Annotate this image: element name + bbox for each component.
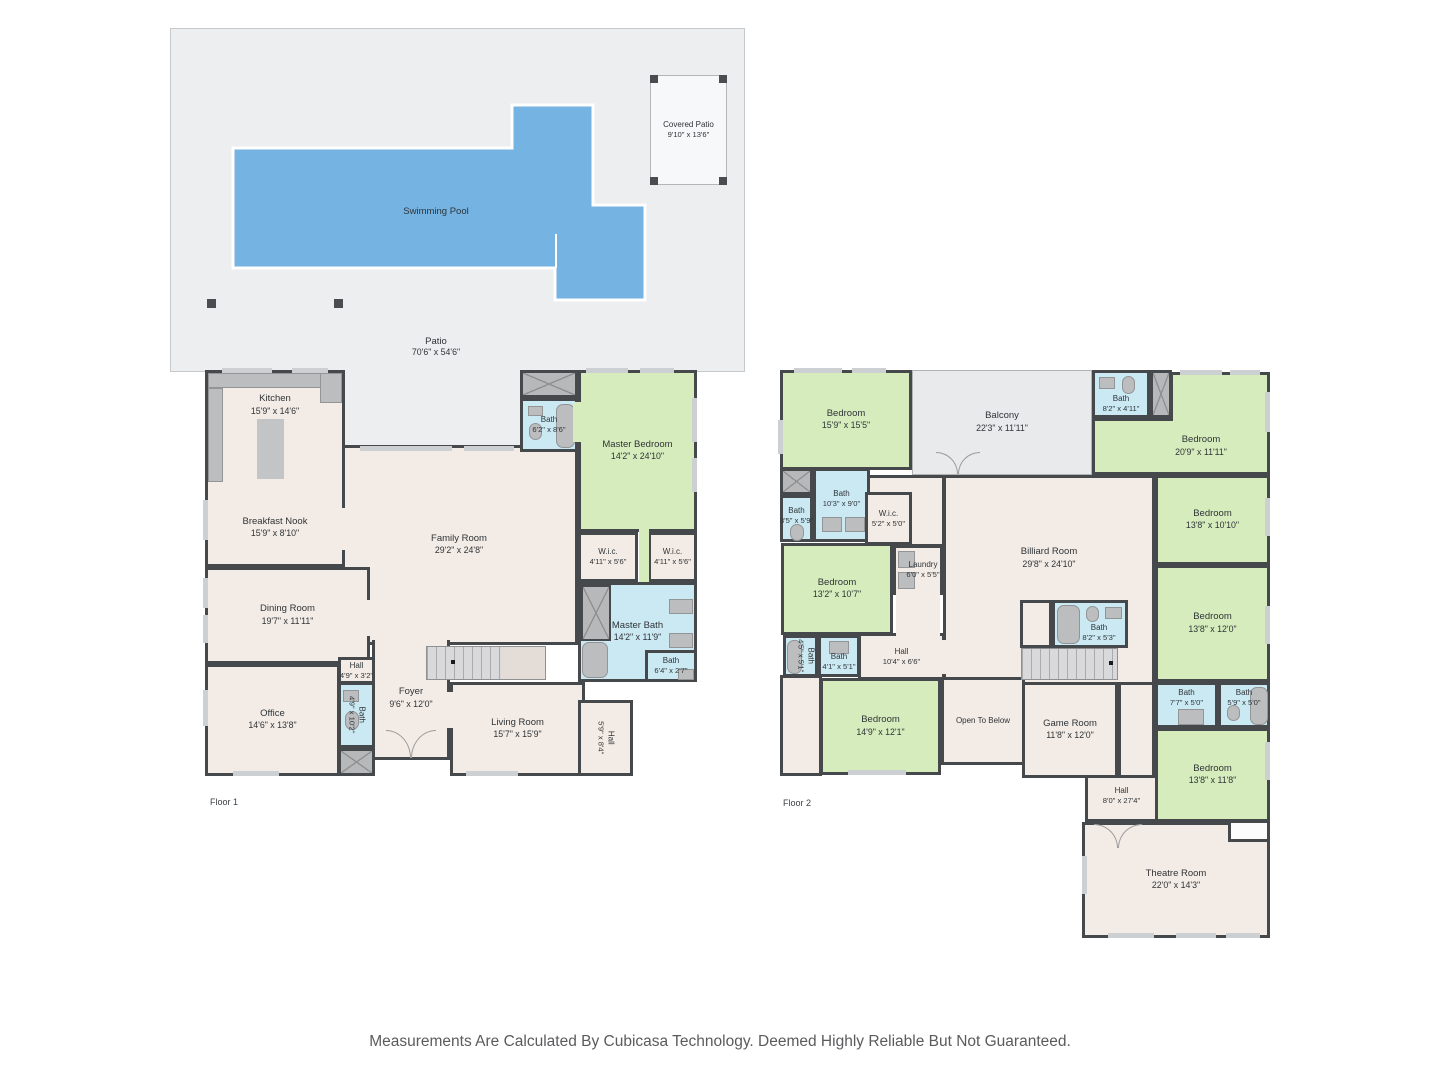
room-label: Living Room 15'7" x 15'9" — [491, 717, 544, 741]
room-dims: 10'3" x 9'0" — [823, 499, 860, 508]
bath-toilet — [1122, 376, 1135, 394]
opening-patch — [938, 640, 950, 674]
room-family-room: Family Room 29'2" x 24'8" — [340, 445, 578, 645]
room-dims: 4'9" x 3'2" — [340, 671, 373, 680]
room-hall-small: Hall 4'9" x 3'2" — [338, 657, 375, 684]
room-name: Breakfast Nook — [243, 516, 308, 529]
room-dims: 29'8" x 24'10" — [1021, 559, 1078, 571]
room-name: Bath — [780, 506, 813, 516]
room-breakfast-nook: Breakfast Nook 15'9" x 8'10" — [205, 492, 345, 567]
opening-patch — [444, 692, 454, 728]
window-marker — [1265, 392, 1270, 432]
room-name: Balcony — [976, 410, 1028, 423]
closet-icon — [338, 748, 375, 776]
room-dims: 11'8" x 12'0" — [1043, 730, 1097, 742]
room-bath-upper: Bath 6'2" x 8'6" — [520, 398, 578, 452]
room-label: Bath 6'4" x 2'7" — [654, 656, 687, 675]
room-name: Open To Below — [956, 716, 1010, 726]
kitchen-counter — [208, 388, 223, 482]
room-label: Bath 5'9" x 5'0" — [1227, 688, 1260, 707]
connector-patch — [896, 592, 940, 638]
room-label: W.i.c. 4'11" x 5'6" — [590, 547, 627, 566]
room-dims: 10'4" x 6'6" — [883, 657, 920, 666]
room-dims: 20'9" x 11'11" — [1175, 447, 1227, 459]
patio-column — [334, 299, 343, 308]
room-dims: 22'3" x 11'11" — [976, 423, 1028, 435]
room-dims: 29'2" x 24'8" — [431, 545, 487, 557]
room-bath-35: Bath 3'5" x 5'9" — [780, 495, 813, 542]
room-bath-103: Bath 10'3" x 9'0" — [813, 468, 870, 542]
room-name: Bedroom — [1188, 611, 1236, 624]
room-label: Master Bedroom 14'2" x 24'10" — [602, 439, 672, 463]
room-name: Master Bedroom — [602, 439, 672, 452]
room-dims: 5'9" x 8'4" — [596, 721, 605, 754]
closet-icon — [520, 370, 578, 398]
window-marker — [1230, 370, 1260, 375]
room-name: Hall — [883, 647, 920, 657]
room-name: Master Bath — [612, 620, 663, 633]
room-bath-small: Bath 6'4" x 2'7" — [645, 650, 697, 682]
window-marker — [1226, 933, 1260, 938]
room-office: Office 14'6" x 13'8" — [205, 664, 340, 776]
room-name: Living Room — [491, 717, 544, 730]
room-label: Bedroom 13'8" x 11'8" — [1189, 763, 1237, 787]
staircase-2 — [1021, 648, 1118, 680]
room-game-room: Game Room 11'8" x 12'0" — [1022, 682, 1118, 778]
room-name: Billiard Room — [1021, 546, 1078, 559]
room-label: Hall 10'4" x 6'6" — [883, 647, 920, 666]
opening-patch — [338, 508, 348, 550]
window-marker — [466, 771, 518, 776]
room-dims: 15'9" x 15'5" — [822, 420, 870, 432]
staircase — [426, 646, 546, 680]
room-bath-top: Bath 8'2" x 4'11" — [1092, 370, 1150, 418]
bath-vanity — [845, 517, 865, 532]
room-name: Hall — [1103, 786, 1140, 796]
room-name: Bedroom — [822, 408, 870, 421]
room-name: Theatre Room — [1146, 868, 1207, 881]
room-dims: 15'9" x 8'10" — [243, 528, 308, 540]
room-label: Bath 4'9" x 10'2" — [347, 696, 366, 733]
room-label: Bath 10'3" x 9'0" — [823, 489, 860, 508]
bath-sink — [1099, 377, 1115, 389]
room-bedroom-r1: Bedroom 13'8" x 10'10" — [1155, 475, 1270, 565]
room-bedroom-l3: Bedroom 14'9" x 12'1" — [820, 678, 941, 775]
room-label: Dining Room 19'7" x 11'11" — [260, 603, 315, 627]
room-label: Theatre Room 22'0" x 14'3" — [1146, 868, 1207, 892]
room-wic2: W.i.c. 5'2" x 5'0" — [865, 492, 912, 545]
window-marker — [640, 368, 674, 373]
room-bedroom-tl: Bedroom 15'9" x 15'5" — [780, 370, 912, 470]
room-label: W.i.c. 5'2" x 5'0" — [872, 509, 905, 528]
room-name: Hall — [605, 721, 615, 754]
room-label: Family Room 29'2" x 24'8" — [431, 533, 487, 557]
room-dims: 9'6" x 12'0" — [389, 699, 432, 711]
room-master-bedroom: Master Bedroom 14'2" x 24'10" — [578, 370, 697, 532]
opening-patch — [365, 600, 375, 636]
room-name: Bedroom — [1189, 763, 1237, 776]
room-bath-billiard: Bath 8'2" x 5'3" — [1052, 600, 1128, 648]
swimming-pool-shape — [233, 105, 645, 300]
window-marker — [586, 368, 628, 373]
room-label: Breakfast Nook 15'9" x 8'10" — [243, 516, 308, 540]
room-name: Bath — [1227, 688, 1260, 698]
room-bath-59: Bath 5'9" x 5'0" — [1218, 682, 1270, 728]
bath-vanity — [822, 517, 842, 532]
room-label: Bath 3'5" x 5'9" — [780, 506, 813, 525]
bath-vanity — [1178, 709, 1204, 725]
room-laundry: Laundry 6'0" x 5'5" — [893, 545, 943, 595]
window-marker — [692, 458, 697, 492]
room-name: Bath — [654, 656, 687, 666]
window-marker — [233, 771, 279, 776]
covered-patio: Covered Patio 9'10" x 13'6" — [650, 75, 727, 185]
room-open-to-below: Open To Below — [941, 677, 1025, 765]
room-dims: 14'2" x 11'9" — [612, 632, 663, 644]
room-name: Bath — [1170, 688, 1203, 698]
room-name: Game Room — [1043, 718, 1097, 731]
room-dims: 4'1" x 5'1" — [822, 662, 855, 671]
room-dims: 6'4" x 2'7" — [654, 666, 687, 675]
room-bedroom-tr: Bedroom 20'9" x 11'11" — [1092, 418, 1270, 475]
billiard-closet — [1020, 600, 1052, 648]
room-label: Game Room 11'8" x 12'0" — [1043, 718, 1097, 742]
room-wic-left: W.i.c. 4'11" x 5'6" — [578, 532, 638, 582]
room-name: Bath — [1103, 394, 1140, 404]
room-dims: 4'9" x 10'2" — [347, 696, 356, 733]
room-dims: 15'9" x 14'6" — [251, 406, 299, 418]
window-marker — [1176, 933, 1216, 938]
room-label: Hall 5'9" x 8'4" — [596, 721, 615, 754]
window-marker — [292, 368, 328, 373]
room-name: Dining Room — [260, 603, 315, 616]
bath-tub — [1057, 605, 1080, 644]
bath-toilet — [1086, 606, 1099, 622]
room-dims: 5'9" x 5'0" — [1227, 698, 1260, 707]
room-bath-45: Bath 4'5" x 5'1" — [783, 635, 818, 677]
floorplan-canvas: Swimming Pool Patio 70'6" x 54'6" Covere… — [0, 0, 1440, 1080]
room-hall-vertical — [1118, 682, 1155, 778]
window-marker — [203, 578, 208, 608]
room-bedroom-r3: Bedroom 13'8" x 11'8" — [1155, 728, 1270, 822]
room-label: Bath 8'2" x 5'3" — [1082, 623, 1115, 642]
window-marker — [1265, 498, 1270, 536]
room-name: Hall — [340, 661, 373, 671]
room-dims: 4'5" x 5'1" — [796, 639, 805, 672]
room-label: Covered Patio 9'10" x 13'6" — [663, 120, 714, 139]
window-marker — [1265, 742, 1270, 780]
room-name: W.i.c. — [654, 547, 691, 557]
opening-patch — [573, 402, 583, 442]
room-name: Office — [248, 708, 296, 721]
room-name: Bath — [356, 696, 366, 733]
room-name: Bedroom — [856, 714, 904, 727]
room-label: Laundry 6'0" x 5'5" — [906, 560, 939, 579]
room-label: Billiard Room 29'8" x 24'10" — [1021, 546, 1078, 570]
pool-label: Swimming Pool — [391, 206, 481, 217]
room-dims: 5'2" x 5'0" — [872, 519, 905, 528]
room-dims: 13'8" x 11'8" — [1189, 775, 1237, 787]
room-name: Bedroom — [813, 577, 861, 590]
closet-icon — [1150, 370, 1172, 418]
room-dims: 9'10" x 13'6" — [663, 130, 714, 139]
room-kitchen: Kitchen 15'9" x 14'6" — [205, 370, 345, 492]
room-label: Bath 7'7" x 5'0" — [1170, 688, 1203, 707]
room-dims: 14'2" x 24'10" — [602, 451, 672, 463]
bath-tub — [582, 642, 608, 678]
room-label: Bath 4'1" x 5'1" — [822, 652, 855, 671]
patio-column — [207, 299, 216, 308]
room-name: Covered Patio — [663, 120, 714, 130]
room-label: Bedroom 20'9" x 11'11" — [1175, 434, 1227, 458]
room-dims: 15'7" x 15'9" — [491, 729, 544, 741]
window-marker — [1180, 370, 1222, 375]
room-label: Bedroom 13'2" x 10'7" — [813, 577, 861, 601]
room-dims: 14'9" x 12'1" — [856, 727, 904, 739]
room-dims: 4'11" x 5'6" — [654, 557, 691, 566]
bath-toilet — [790, 524, 804, 541]
room-bedroom-tr-ext — [1170, 372, 1270, 421]
room-name: Foyer — [389, 686, 432, 699]
room-name: Kitchen — [251, 393, 299, 406]
room-dims: 6'2" x 8'6" — [532, 425, 565, 434]
room-dims: 70'6" x 54'6" — [386, 347, 486, 357]
room-name: Laundry — [906, 560, 939, 570]
window-marker — [464, 446, 514, 451]
window-marker — [203, 615, 208, 643]
room-bedroom-r2: Bedroom 13'8" x 12'0" — [1155, 565, 1270, 682]
room-dims: 8'2" x 4'11" — [1103, 404, 1140, 413]
window-marker — [692, 398, 697, 442]
room-hall-side: Hall 5'9" x 8'4" — [578, 700, 633, 776]
room-dims: 8'0" x 27'4" — [1103, 796, 1140, 805]
room-hall-center: Hall 10'4" x 6'6" — [858, 633, 945, 680]
window-marker — [778, 420, 783, 454]
room-name: Bedroom — [1175, 434, 1227, 447]
room-name: Bath — [1082, 623, 1115, 633]
room-dims: 14'6" x 13'8" — [248, 720, 296, 732]
room-label: Foyer 9'6" x 12'0" — [389, 686, 432, 710]
room-label: Office 14'6" x 13'8" — [248, 708, 296, 732]
kitchen-island — [257, 419, 284, 479]
room-living-room: Living Room 15'7" x 15'9" — [450, 682, 585, 776]
room-label: Bedroom 14'9" x 12'1" — [856, 714, 904, 738]
room-bedroom-l2: Bedroom 13'2" x 10'7" — [781, 543, 893, 635]
room-wic-right: W.i.c. 4'11" x 5'6" — [648, 532, 697, 582]
room-corridor-left — [780, 675, 822, 776]
room-name: W.i.c. — [872, 509, 905, 519]
room-dims: 7'7" x 5'0" — [1170, 698, 1203, 707]
bath-vanity — [669, 633, 693, 648]
room-name: Bath — [822, 652, 855, 662]
room-label: W.i.c. 4'11" x 5'6" — [654, 547, 691, 566]
floor2-label: Floor 2 — [783, 798, 811, 808]
passage-patch — [639, 529, 649, 582]
room-label: Hall 4'9" x 3'2" — [340, 661, 373, 680]
room-name: Bath — [805, 639, 815, 672]
room-dims: 19'7" x 11'11" — [260, 616, 315, 628]
room-name: Bath — [532, 415, 565, 425]
room-bath-hall: Bath 4'9" x 10'2" — [338, 682, 375, 748]
bath-sink — [1105, 607, 1122, 619]
room-label: Bath 8'2" x 4'11" — [1103, 394, 1140, 413]
window-marker — [1082, 856, 1087, 894]
window-marker — [794, 368, 842, 373]
room-dims: 3'5" x 5'9" — [780, 516, 813, 525]
floor1-label: Floor 1 — [210, 797, 238, 807]
kitchen-counter — [320, 373, 342, 403]
room-name: Patio — [386, 336, 486, 347]
room-dims: 13'8" x 12'0" — [1188, 624, 1236, 636]
room-label: Open To Below — [956, 716, 1010, 726]
window-marker — [203, 500, 208, 540]
room-bath-41: Bath 4'1" x 5'1" — [818, 635, 860, 677]
window-marker — [222, 368, 272, 373]
window-marker — [852, 368, 886, 373]
window-marker — [1108, 933, 1154, 938]
room-name: Bedroom — [1186, 508, 1239, 521]
bath-vanity — [669, 599, 693, 614]
room-name: Family Room — [431, 533, 487, 546]
room-name: Bath — [823, 489, 860, 499]
patio-notch — [345, 370, 523, 448]
room-label: Bath 4'5" x 5'1" — [796, 639, 815, 672]
room-label: Bath 6'2" x 8'6" — [532, 415, 565, 434]
room-dims: 4'11" x 5'6" — [590, 557, 627, 566]
room-bath-77: Bath 7'7" x 5'0" — [1155, 682, 1218, 728]
shower-icon — [581, 585, 611, 641]
room-name: Swimming Pool — [403, 206, 468, 217]
room-name: W.i.c. — [590, 547, 627, 557]
room-dims: 13'8" x 10'10" — [1186, 520, 1239, 532]
room-label: Balcony 22'3" x 11'11" — [976, 410, 1028, 434]
room-label: Master Bath 14'2" x 11'9" — [612, 620, 663, 644]
room-dims: 13'2" x 10'7" — [813, 589, 861, 601]
room-label: Kitchen 15'9" x 14'6" — [251, 393, 299, 417]
room-dims: 22'0" x 14'3" — [1146, 880, 1207, 892]
patio-label: Patio 70'6" x 54'6" — [386, 336, 486, 357]
window-marker — [203, 690, 208, 726]
room-dining-room: Dining Room 19'7" x 11'11" — [205, 567, 370, 664]
disclaimer-text: Measurements Are Calculated By Cubicasa … — [0, 1033, 1440, 1051]
window-marker — [848, 770, 906, 775]
room-label: Bedroom 15'9" x 15'5" — [822, 408, 870, 432]
theatre-notch — [1228, 820, 1270, 842]
room-label: Bedroom 13'8" x 12'0" — [1188, 611, 1236, 635]
room-label: Hall 8'0" x 27'4" — [1103, 786, 1140, 805]
room-label: Bedroom 13'8" x 10'10" — [1186, 508, 1239, 532]
room-dims: 8'2" x 5'3" — [1082, 633, 1115, 642]
closet-icon — [780, 468, 813, 495]
room-dims: 6'0" x 5'5" — [906, 570, 939, 579]
window-marker — [1265, 606, 1270, 644]
window-marker — [360, 446, 452, 451]
